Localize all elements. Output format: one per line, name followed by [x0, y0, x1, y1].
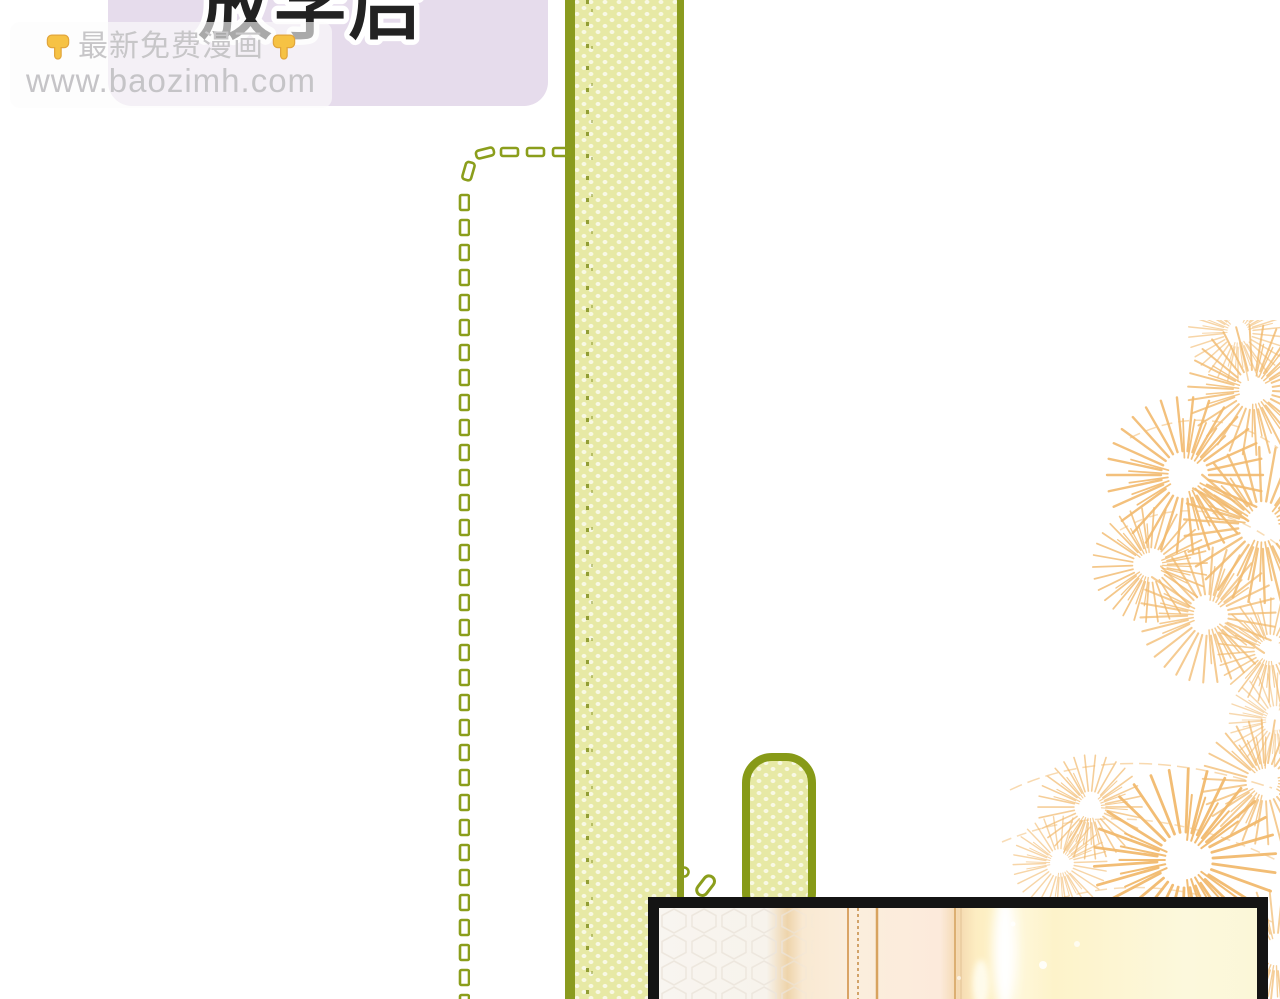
scene-panel-art: [659, 908, 1257, 999]
dashed-border-line: [0, 0, 1280, 999]
pointing-down-emoji: [269, 32, 299, 62]
pointing-down-emoji: [43, 32, 73, 62]
watermark-line1-text: 最新免费漫画: [78, 31, 264, 63]
watermark-box: 最新免费漫画 www.baozimh.com: [10, 22, 332, 108]
watermark-url: www.baozimh.com: [26, 64, 316, 99]
comic-page: 放学后 最新免费漫画 www.baozimh.com: [0, 0, 1280, 999]
scene-panel: [648, 897, 1268, 999]
watermark-line1: 最新免费漫画: [43, 31, 299, 63]
